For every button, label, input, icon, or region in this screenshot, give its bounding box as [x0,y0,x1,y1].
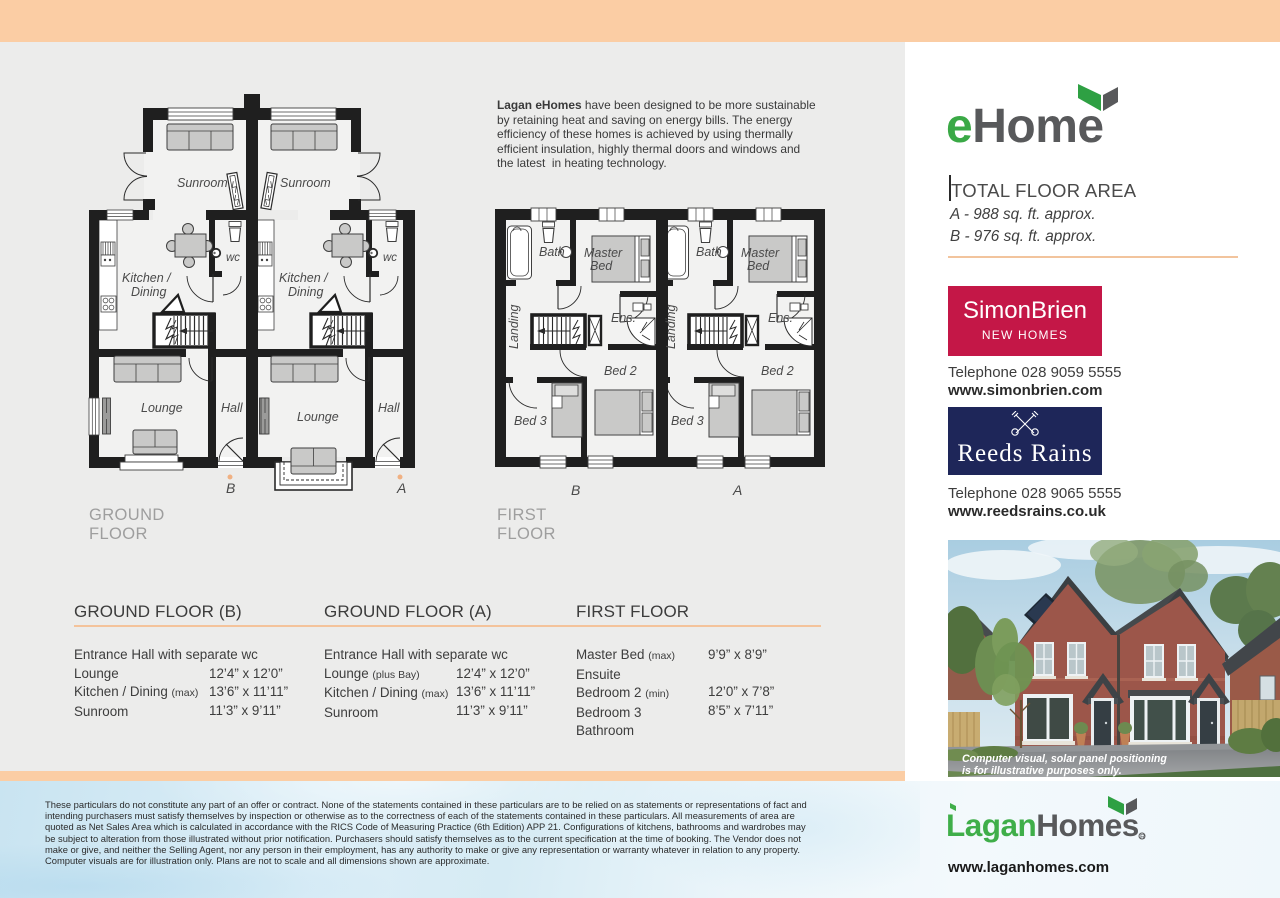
svg-text:Hall: Hall [221,401,244,415]
svg-text:Lounge: Lounge [297,410,339,424]
svg-text:B: B [226,480,235,496]
svg-text:Sunroom: Sunroom [280,176,331,190]
svg-text:Hall: Hall [378,401,401,415]
svg-text:wc: wc [383,252,397,264]
svg-text:Bath: Bath [539,245,565,259]
svg-text:A: A [732,482,742,498]
svg-text:R: R [1140,834,1145,841]
svg-text:A: A [396,480,406,496]
svg-text:B: B [571,482,580,498]
svg-text:Bed 3: Bed 3 [671,414,704,428]
svg-text:Bed 3: Bed 3 [514,414,547,428]
svg-text:Ens.: Ens. [611,311,636,325]
svg-text:Bath: Bath [696,245,722,259]
svg-text:Bed 2: Bed 2 [604,364,637,378]
svg-text:Landing: Landing [664,304,678,349]
svg-text:Landing: Landing [507,304,521,349]
svg-text:Sunroom: Sunroom [177,176,228,190]
svg-text:Computer visual, solar panel p: Computer visual, solar panel positioning [962,753,1167,765]
svg-text:Lounge: Lounge [141,401,183,415]
svg-text:Ens.: Ens. [768,311,793,325]
svg-text:Bed 2: Bed 2 [761,364,794,378]
svg-text:is for illustrative purposes o: is for illustrative purposes only. [962,765,1122,777]
svg-text:wc: wc [226,252,240,264]
